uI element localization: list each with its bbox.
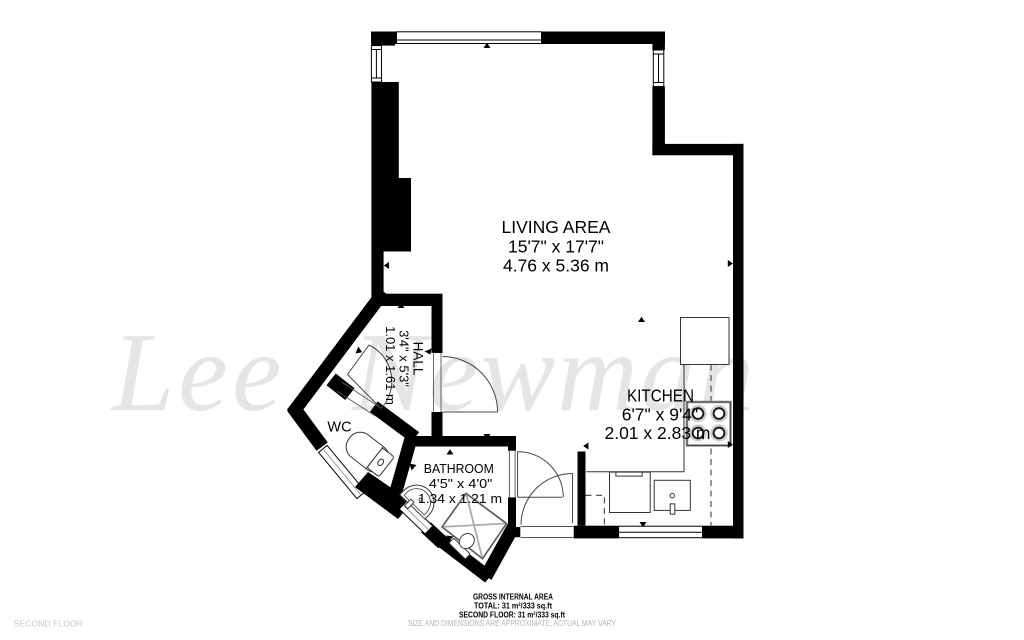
svg-text:LIVING AREA: LIVING AREA — [502, 217, 611, 237]
svg-text:SECOND FLOOR: SECOND FLOOR — [14, 619, 84, 629]
svg-text:1.34 x 1.21 m: 1.34 x 1.21 m — [418, 491, 502, 506]
svg-text:HALL: HALL — [411, 342, 426, 376]
svg-text:SIZE AND DIMENSIONS ARE APPROX: SIZE AND DIMENSIONS ARE APPROXIMATE, ACT… — [408, 619, 617, 628]
svg-text:1.01 x 1.61 m: 1.01 x 1.61 m — [383, 326, 398, 405]
svg-text:2.01 x 2.83 m: 2.01 x 2.83 m — [604, 423, 710, 443]
svg-text:6'7" x 9'4": 6'7" x 9'4" — [622, 405, 699, 425]
svg-text:4'5" x 4'0": 4'5" x 4'0" — [429, 476, 493, 491]
svg-text:BATHROOM: BATHROOM — [424, 461, 494, 476]
svg-text:Lee: Lee — [110, 311, 286, 435]
svg-text:15'7" x 17'7": 15'7" x 17'7" — [508, 237, 604, 257]
svg-text:TOTAL: 31 m²/333 sq.ft: TOTAL: 31 m²/333 sq.ft — [474, 602, 552, 611]
svg-text:KITCHEN: KITCHEN — [627, 386, 694, 406]
svg-text:4.76 x 5.36 m: 4.76 x 5.36 m — [503, 256, 609, 276]
svg-text:WC: WC — [327, 420, 351, 436]
svg-text:GROSS INTERNAL AREA: GROSS INTERNAL AREA — [473, 593, 553, 602]
